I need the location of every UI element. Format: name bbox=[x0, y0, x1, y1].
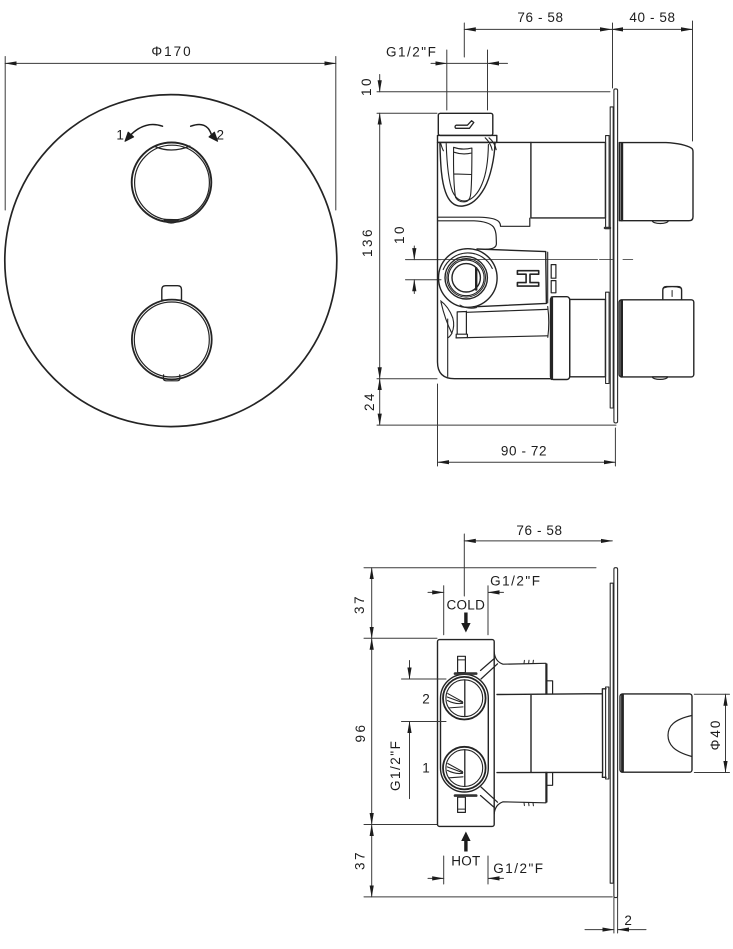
svg-text:136: 136 bbox=[360, 227, 375, 257]
svg-text:2: 2 bbox=[624, 913, 632, 928]
svg-text:G1/2"F: G1/2"F bbox=[388, 740, 403, 791]
svg-text:40 - 58: 40 - 58 bbox=[629, 10, 675, 25]
svg-text:10: 10 bbox=[392, 224, 407, 244]
svg-text:24: 24 bbox=[362, 391, 377, 411]
svg-text:96: 96 bbox=[353, 722, 368, 742]
svg-text:HOT: HOT bbox=[451, 854, 480, 869]
svg-text:90 - 72: 90 - 72 bbox=[501, 444, 547, 459]
svg-text:Φ40: Φ40 bbox=[708, 719, 723, 751]
svg-text:2: 2 bbox=[216, 127, 224, 142]
svg-text:COLD: COLD bbox=[446, 598, 485, 613]
svg-text:Φ170: Φ170 bbox=[151, 44, 192, 59]
svg-text:1: 1 bbox=[422, 761, 430, 776]
svg-text:37: 37 bbox=[353, 850, 368, 870]
svg-text:G1/2"F: G1/2"F bbox=[386, 45, 437, 60]
svg-text:10: 10 bbox=[359, 76, 374, 96]
svg-text:37: 37 bbox=[352, 594, 367, 614]
svg-text:G1/2"F: G1/2"F bbox=[490, 574, 541, 589]
svg-text:G1/2"F: G1/2"F bbox=[493, 861, 544, 876]
svg-text:76 - 58: 76 - 58 bbox=[517, 10, 563, 25]
svg-text:1: 1 bbox=[116, 127, 124, 142]
svg-text:2: 2 bbox=[422, 692, 430, 707]
svg-text:76 - 58: 76 - 58 bbox=[516, 523, 562, 538]
